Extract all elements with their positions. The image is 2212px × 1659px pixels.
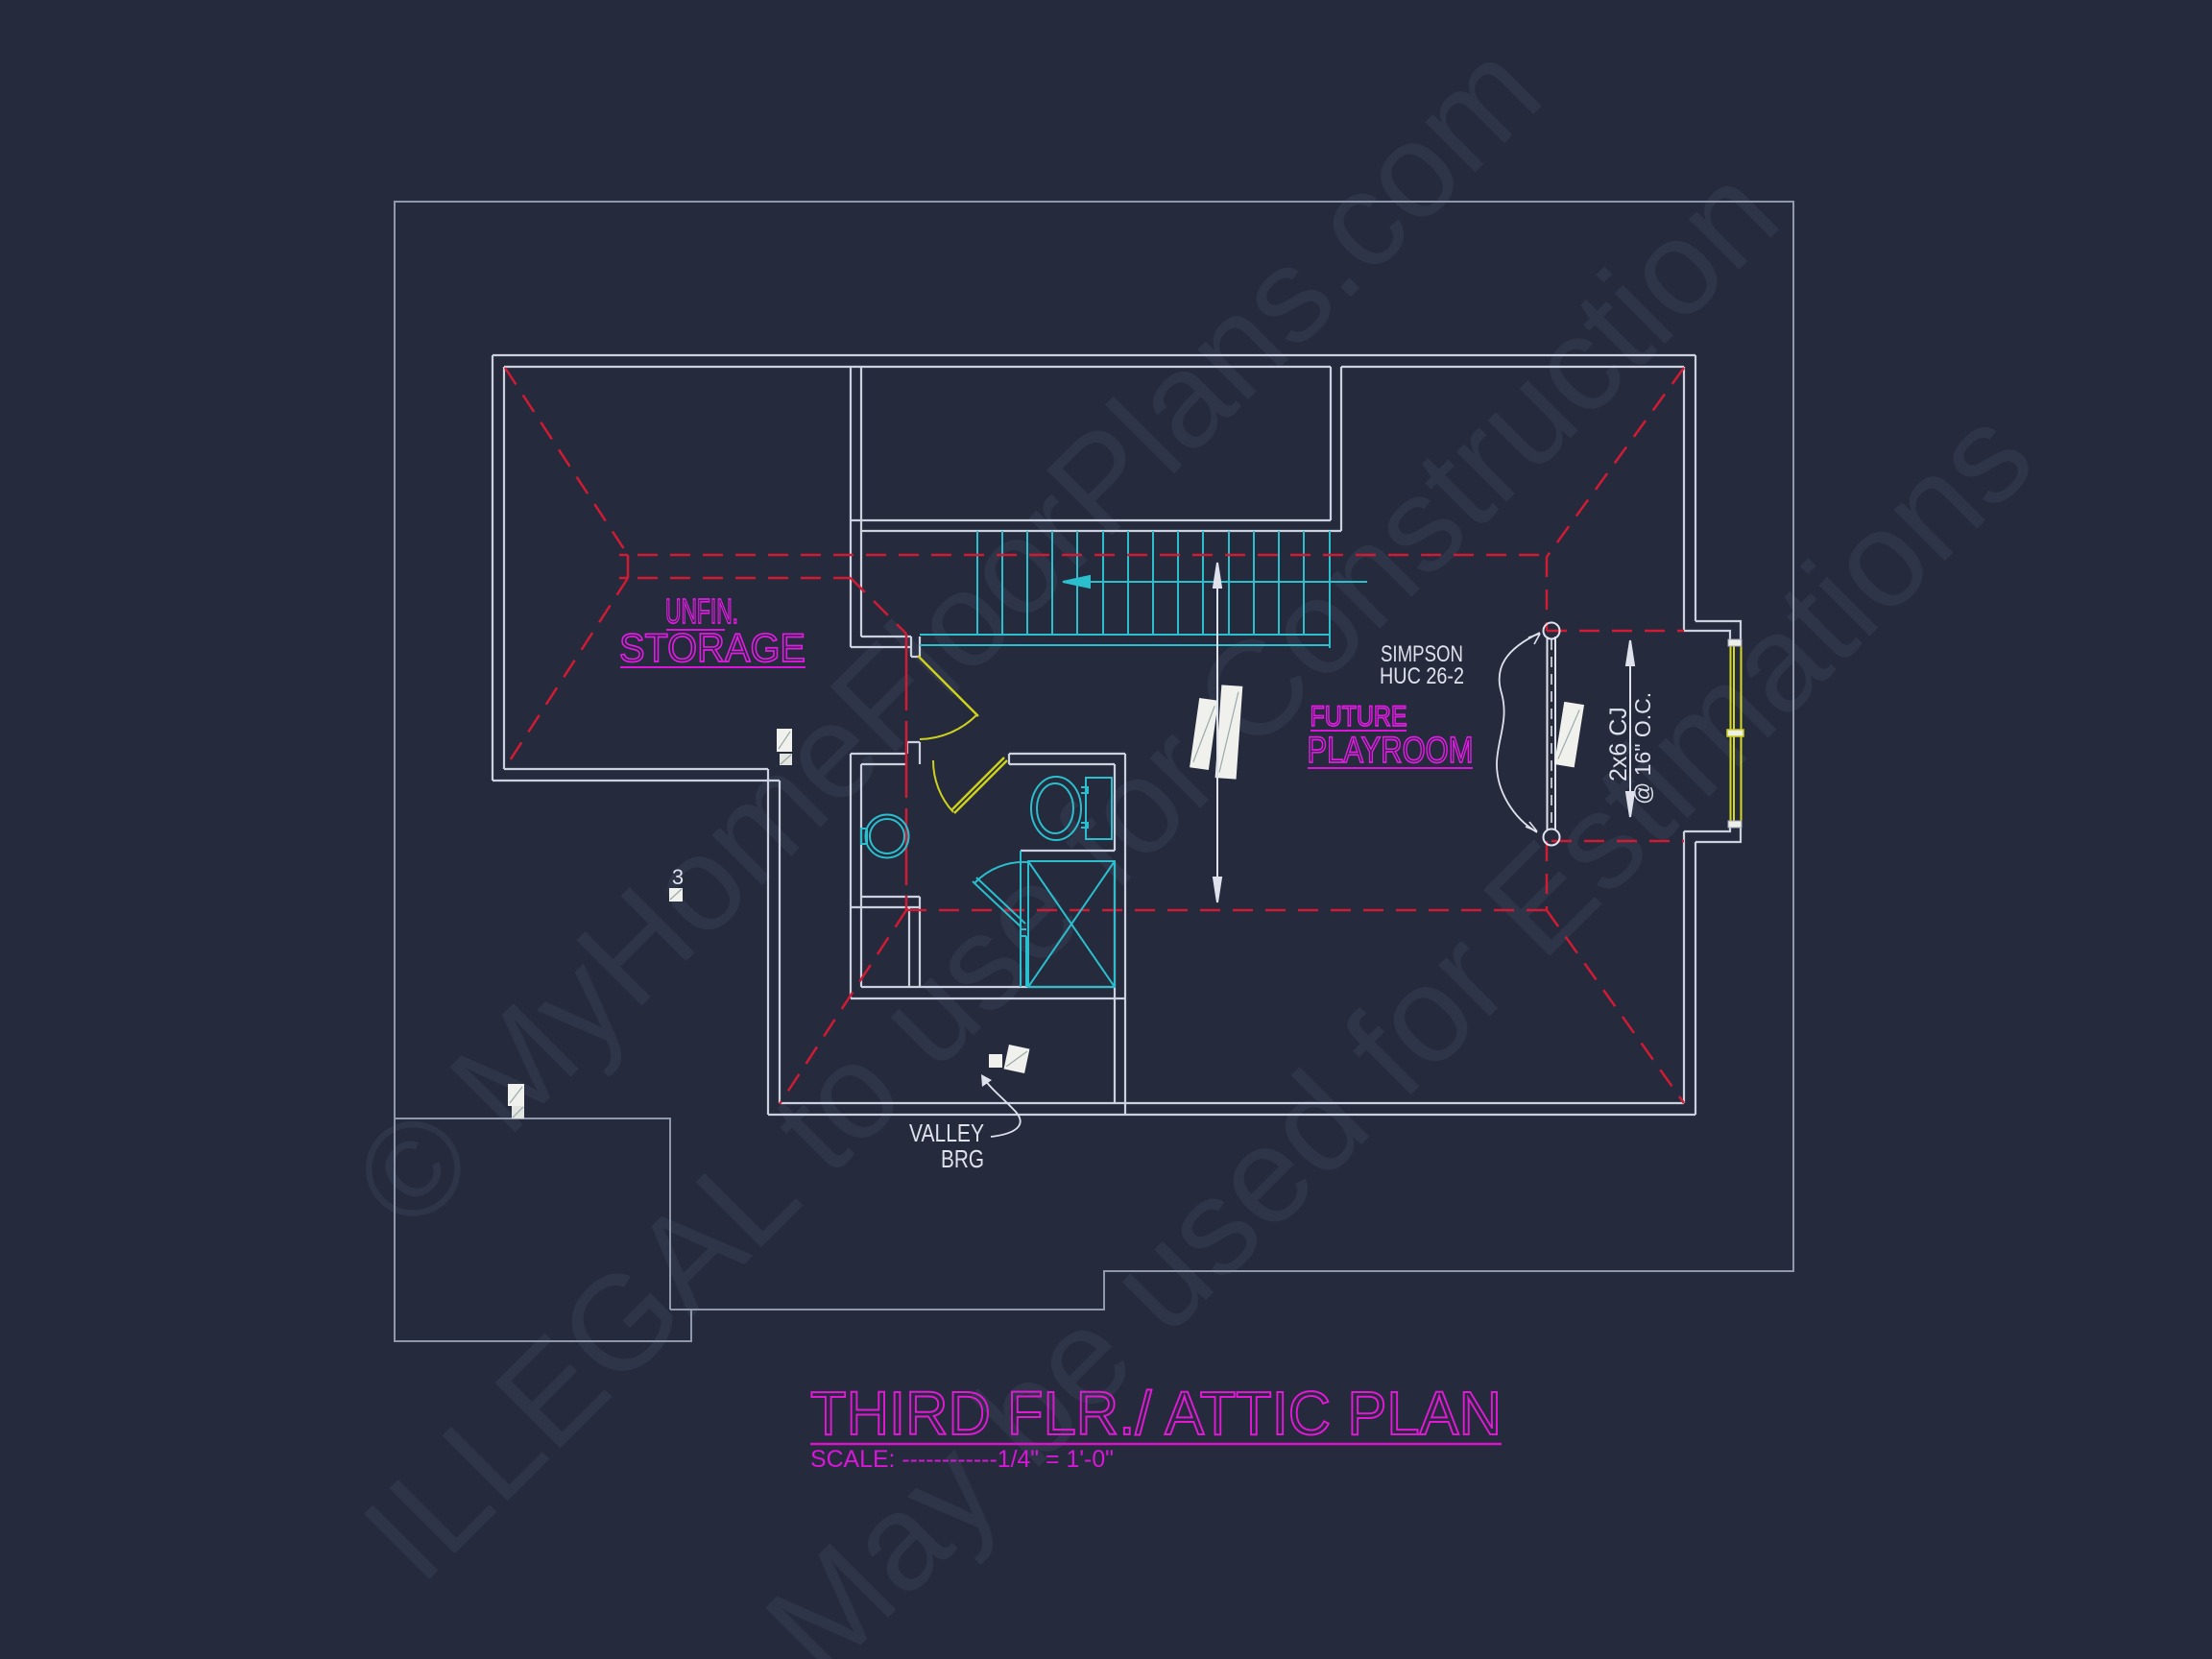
svg-text:SCALE: ------------1/4" = 1'-0: SCALE: ------------1/4" = 1'-0" xyxy=(810,1446,1114,1473)
svg-text:THIRD FLR./ ATTIC PLAN: THIRD FLR./ ATTIC PLAN xyxy=(810,1379,1502,1448)
svg-text:2x6 CJ: 2x6 CJ xyxy=(1605,707,1632,781)
svg-text:HUC 26-2: HUC 26-2 xyxy=(1380,663,1464,689)
svg-text:FUTURE: FUTURE xyxy=(1310,701,1407,733)
svg-text:PLAYROOM: PLAYROOM xyxy=(1308,731,1474,771)
svg-text:STORAGE: STORAGE xyxy=(619,625,805,670)
svg-text:3: 3 xyxy=(672,865,684,889)
svg-text:BRG: BRG xyxy=(941,1144,984,1173)
svg-text:@ 16" O.C.: @ 16" O.C. xyxy=(1630,692,1655,805)
svg-text:VALLEY: VALLEY xyxy=(909,1118,984,1147)
